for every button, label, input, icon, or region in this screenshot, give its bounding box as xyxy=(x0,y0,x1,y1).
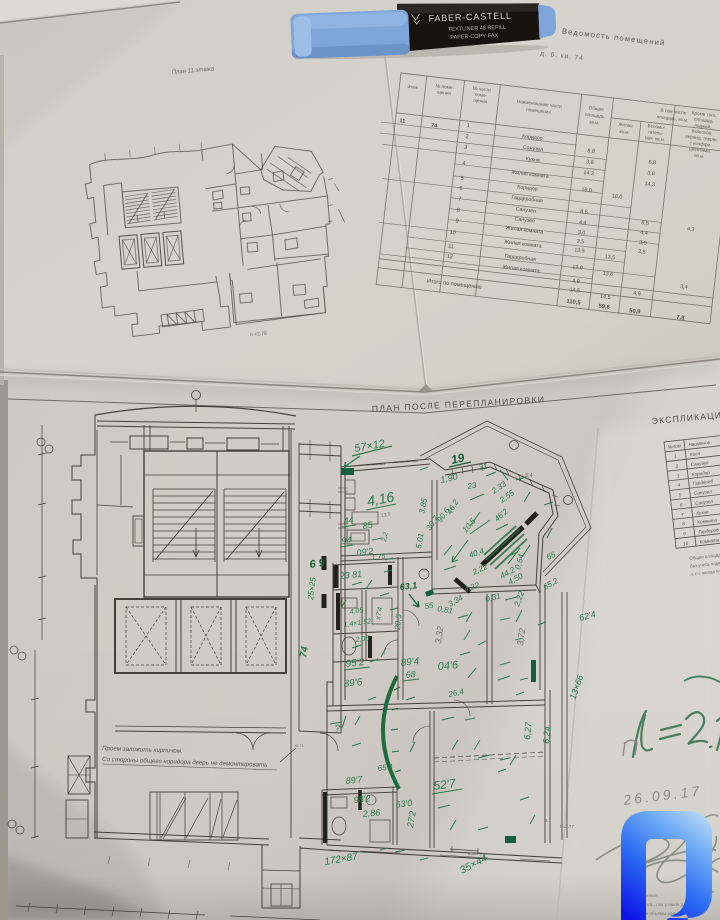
svg-text:18,0: 18,0 xyxy=(611,193,622,200)
svg-text:3,0: 3,0 xyxy=(639,240,647,247)
svg-text:10: 10 xyxy=(683,541,689,547)
svg-text:10: 10 xyxy=(449,230,456,237)
svg-text:4,4: 4,4 xyxy=(579,220,587,227)
svg-text:3,8: 3,8 xyxy=(647,170,655,177)
svg-text:63,1: 63,1 xyxy=(399,580,417,592)
svg-text:4,9: 4,9 xyxy=(633,291,641,298)
svg-text:3,5: 3,5 xyxy=(638,249,646,256)
svg-text:55: 55 xyxy=(424,601,435,611)
svg-text:31: 31 xyxy=(478,462,488,472)
svg-text:+6.74: +6.74 xyxy=(294,744,304,748)
svg-text:6 9: 6 9 xyxy=(309,557,327,571)
svg-text:h +2.79: h +2.79 xyxy=(250,331,267,338)
svg-text:68: 68 xyxy=(405,669,416,680)
svg-text:h=2.77: h=2.77 xyxy=(560,824,574,829)
svg-text:20,5: 20,5 xyxy=(393,613,403,631)
svg-text:94: 94 xyxy=(341,535,352,546)
svg-text:4,3: 4,3 xyxy=(687,226,695,233)
svg-text:11: 11 xyxy=(399,118,406,125)
svg-text:3,4: 3,4 xyxy=(680,284,688,291)
svg-text:13,6: 13,6 xyxy=(602,271,613,278)
svg-text:65'4: 65'4 xyxy=(377,762,393,773)
svg-text:04'6: 04'6 xyxy=(437,659,459,673)
svg-text:8,8: 8,8 xyxy=(648,160,656,167)
svg-text:11: 11 xyxy=(448,244,454,251)
svg-text:8,5: 8,5 xyxy=(580,209,588,216)
svg-text:3,4: 3,4 xyxy=(525,473,533,479)
svg-text:3,5: 3,5 xyxy=(576,239,584,246)
svg-text:13,5: 13,5 xyxy=(604,254,615,261)
svg-text:89'7: 89'7 xyxy=(345,774,364,786)
svg-text:7,8: 7,8 xyxy=(676,315,685,322)
svg-text:13,5: 13,5 xyxy=(574,247,585,254)
svg-text:98'2: 98'2 xyxy=(353,793,371,805)
svg-text:6,24: 6,24 xyxy=(541,726,552,744)
svg-text:14,3: 14,3 xyxy=(583,170,594,177)
svg-text:13,0: 13,0 xyxy=(572,264,583,271)
svg-text:44: 44 xyxy=(343,515,354,526)
svg-text:89'4: 89'4 xyxy=(400,656,420,669)
svg-text:12: 12 xyxy=(446,254,453,261)
svg-text:3,0: 3,0 xyxy=(577,230,585,237)
svg-text:4,9: 4,9 xyxy=(572,278,580,285)
svg-text:6,27: 6,27 xyxy=(522,721,534,740)
svg-text:4,4: 4,4 xyxy=(640,230,648,237)
svg-text:14,3: 14,3 xyxy=(644,181,655,188)
svg-text:14,5: 14,5 xyxy=(600,294,611,301)
svg-text:3,8: 3,8 xyxy=(586,159,594,166)
svg-text:14,5: 14,5 xyxy=(569,287,580,294)
svg-text:89'6: 89'6 xyxy=(343,677,363,690)
svg-text:8,8: 8,8 xyxy=(587,148,595,155)
svg-text:4.1: 4.1 xyxy=(545,818,552,823)
svg-text:18,0: 18,0 xyxy=(581,187,592,194)
svg-text:8,5: 8,5 xyxy=(641,220,649,227)
svg-text:2,86: 2,86 xyxy=(361,807,380,819)
